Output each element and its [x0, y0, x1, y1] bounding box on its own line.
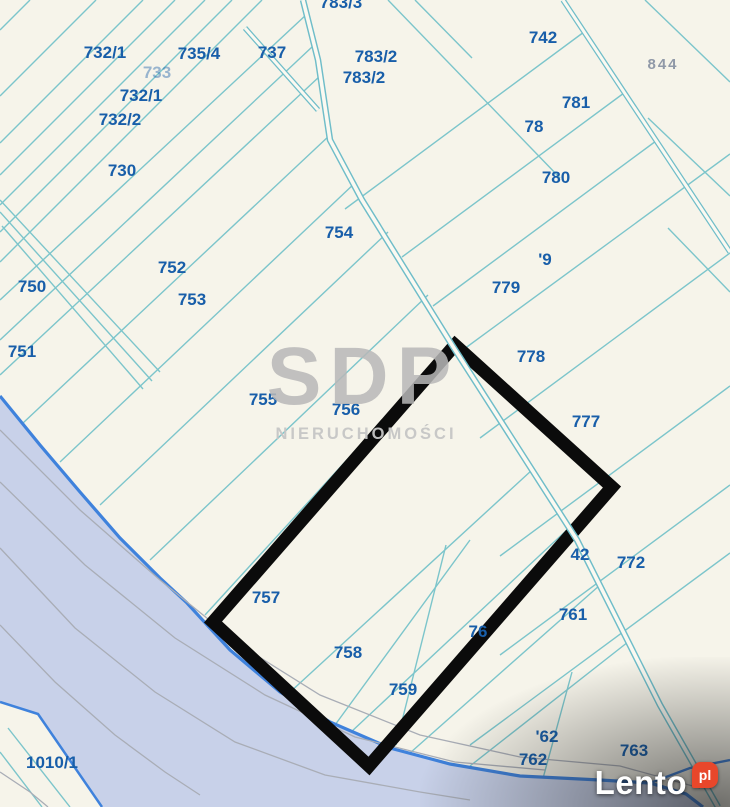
parcel-label-781: 781 — [562, 93, 590, 112]
parcel-label-737: 737 — [258, 43, 286, 62]
parcel-label-754: 754 — [325, 223, 354, 242]
lento-logo: Lento pl — [595, 766, 718, 799]
parcel-label-742: 742 — [529, 28, 557, 47]
parcel-label-76: 76 — [469, 622, 488, 641]
lento-pl-badge-icon: pl — [692, 762, 718, 788]
parcel-label-752: 752 — [158, 258, 186, 277]
parcel-label-783-2b: 783/2 — [343, 68, 386, 87]
parcel-label-751: 751 — [8, 342, 36, 361]
parcel-label-758: 758 — [334, 643, 362, 662]
parcel-label-42: 42 — [571, 545, 590, 564]
lento-logo-text: Lento — [595, 766, 687, 799]
parcel-label-780: 780 — [542, 168, 570, 187]
agency-watermark: SDP — [267, 336, 460, 418]
parcel-label-779: 779 — [492, 278, 520, 297]
parcel-label-844: 844 — [647, 56, 678, 73]
parcel-label-777: 777 — [572, 412, 600, 431]
parcel-label-783-3: 783/3 — [320, 0, 363, 12]
parcel-label-735-4: 735/4 — [178, 44, 221, 63]
cadastral-map-image[interactable]: 732/1 735/4 737 733 732/1 732/2 730 783/… — [0, 0, 730, 807]
agency-watermark-subtitle: NIERUCHOMOŚCI — [275, 425, 456, 444]
parcel-label-779b: '9 — [538, 250, 552, 269]
parcel-label-757: 757 — [252, 588, 280, 607]
lento-pl-badge-label: pl — [699, 768, 711, 782]
parcel-label-1010-1: 1010/1 — [26, 753, 78, 772]
parcel-label-783-2a: 783/2 — [355, 47, 398, 66]
parcel-label-753: 753 — [178, 290, 206, 309]
parcel-label-759: 759 — [389, 680, 417, 699]
parcel-label-750: 750 — [18, 277, 46, 296]
parcel-label-730: 730 — [108, 161, 136, 180]
parcel-label-761: 761 — [559, 605, 587, 624]
parcel-label-732-1a: 732/1 — [84, 43, 127, 62]
parcel-label-732-2: 732/2 — [99, 110, 142, 129]
parcel-label-732-1b: 732/1 — [120, 86, 163, 105]
parcel-label-772: 772 — [617, 553, 645, 572]
parcel-label-778: 778 — [517, 347, 545, 366]
parcel-label-733: 733 — [143, 63, 171, 82]
parcel-label-78: 78 — [525, 117, 544, 136]
